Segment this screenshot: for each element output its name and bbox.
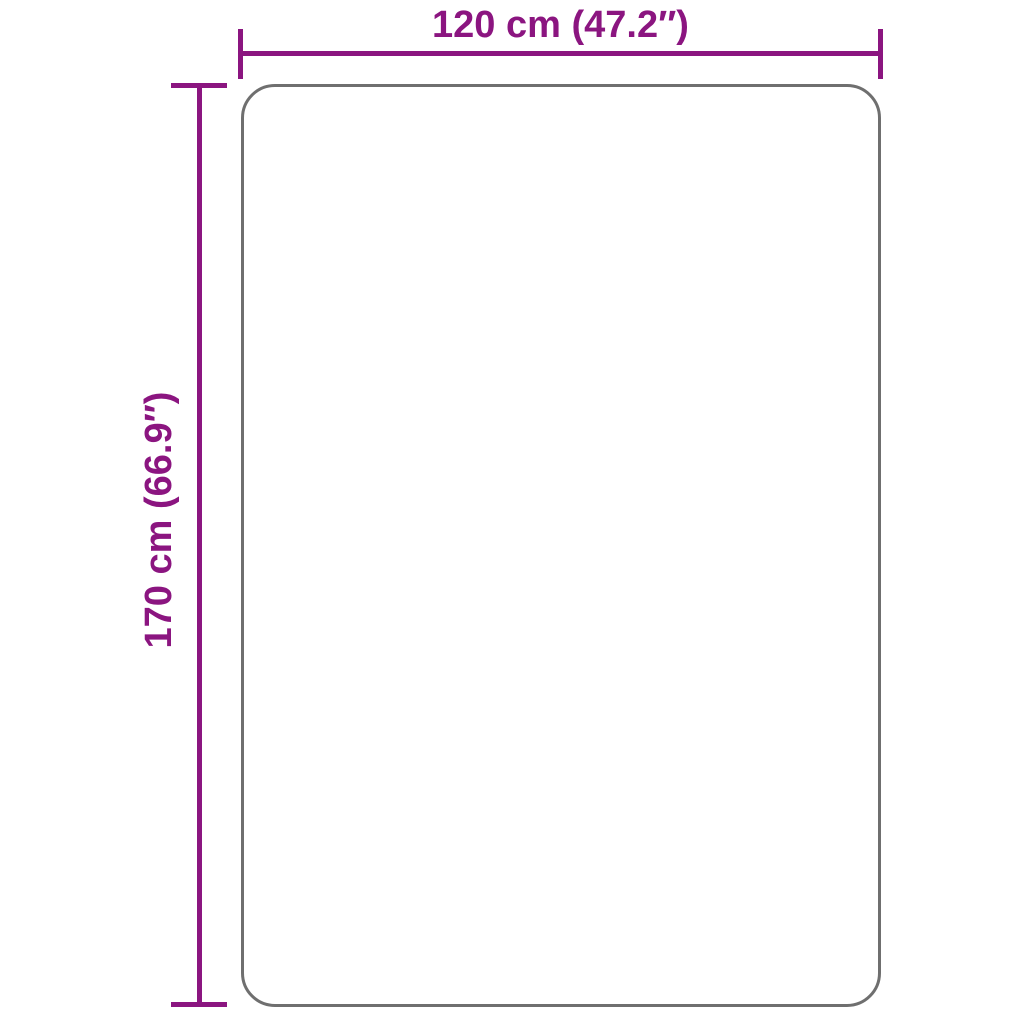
width-dimension-line [238, 51, 883, 56]
rug-outline [241, 84, 881, 1007]
height-dimension-label: 170 cm (66.9″) [140, 392, 178, 649]
width-dimension-label: 120 cm (47.2″) [238, 6, 883, 44]
dimension-diagram: 120 cm (47.2″) 170 cm (66.9″) [0, 0, 1024, 1024]
height-dimension-cap-bottom [171, 1002, 227, 1007]
height-dimension-line [197, 83, 202, 1007]
height-dimension-cap-top [171, 83, 227, 88]
